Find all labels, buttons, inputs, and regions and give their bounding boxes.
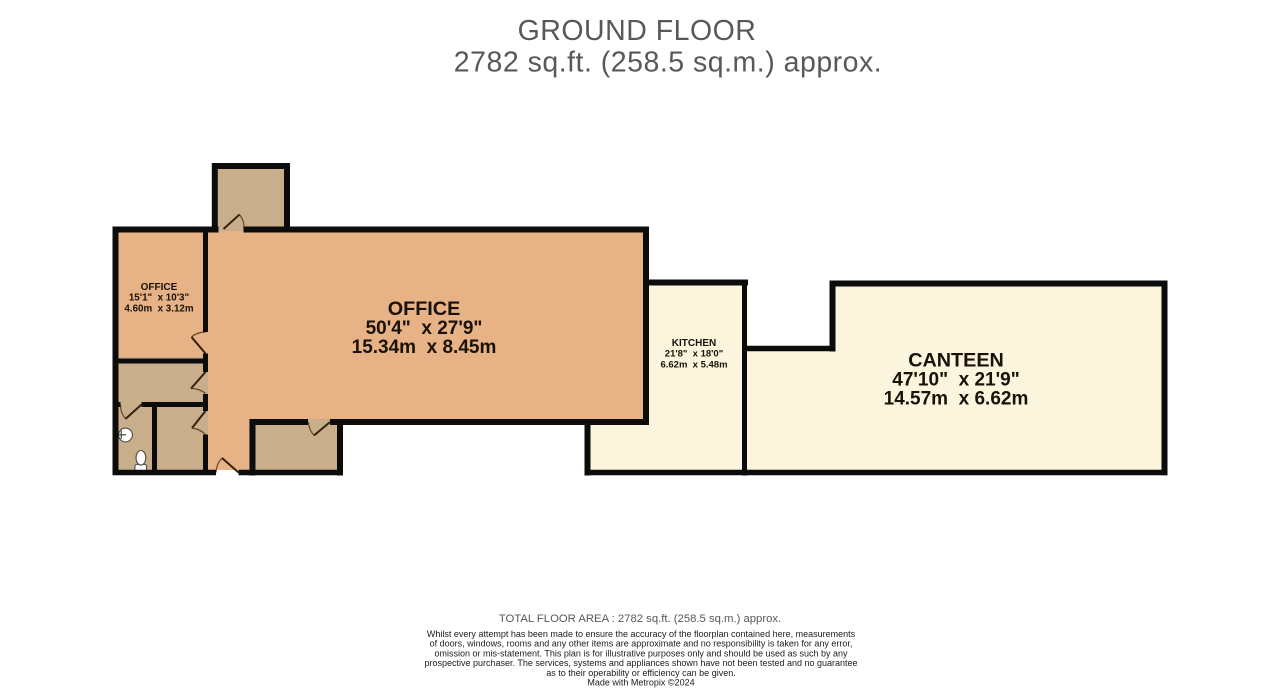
svg-text:47'10" x 21'9": 47'10" x 21'9" [892,370,1019,391]
svg-text:50'4" x 27'9": 50'4" x 27'9" [366,318,483,339]
svg-text:14.57m x 6.62m: 14.57m x 6.62m [884,389,1029,410]
svg-text:6.62m x 5.48m: 6.62m x 5.48m [660,359,727,370]
svg-text:4.60m x 3.12m: 4.60m x 3.12m [124,303,193,314]
svg-text:GROUND FLOOR: GROUND FLOOR [518,15,757,47]
svg-text:21'8" x 18'0": 21'8" x 18'0" [665,349,723,360]
svg-text:OFFICE: OFFICE [388,298,461,320]
svg-text:as to their operability or eff: as to their operability or efficiency ca… [546,668,735,678]
svg-text:OFFICE: OFFICE [141,282,178,293]
svg-text:of doors, windows, rooms and a: of doors, windows, rooms and any other i… [430,639,853,649]
svg-text:Made with Metropix ©2024: Made with Metropix ©2024 [587,678,694,688]
svg-text:Whilst every attempt has been: Whilst every attempt has been made to en… [427,629,856,639]
svg-text:TOTAL FLOOR AREA : 2782 sq.ft.: TOTAL FLOOR AREA : 2782 sq.ft. (258.5 sq… [499,613,781,625]
svg-text:2782 sq.ft. (258.5 sq.m.) appr: 2782 sq.ft. (258.5 sq.m.) approx. [454,47,882,79]
svg-text:CANTEEN: CANTEEN [908,350,1004,372]
svg-text:omission or mis-statement. Thi: omission or mis-statement. This plan is … [434,648,848,658]
svg-text:prospective purchaser. The ser: prospective purchaser. The services, sys… [424,658,857,668]
svg-text:15'1" x 10'3": 15'1" x 10'3" [129,293,189,304]
svg-text:15.34m x 8.45m: 15.34m x 8.45m [352,337,497,358]
svg-text:KITCHEN: KITCHEN [672,338,716,349]
